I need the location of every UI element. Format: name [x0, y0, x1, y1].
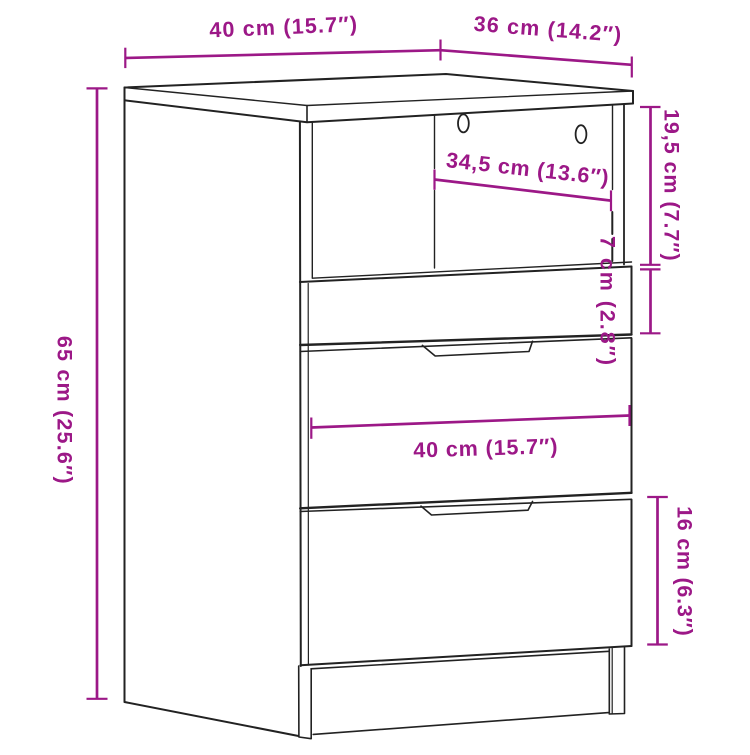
svg-text:40 cm (15.7″): 40 cm (15.7″) — [413, 434, 559, 462]
svg-text:19,5 cm (7.7″): 19,5 cm (7.7″) — [660, 109, 684, 262]
svg-text:16 cm (6.3″): 16 cm (6.3″) — [673, 506, 697, 636]
svg-text:7 cm (2.8″): 7 cm (2.8″) — [596, 236, 620, 367]
svg-text:65 cm (25.6″): 65 cm (25.6″) — [53, 336, 77, 485]
